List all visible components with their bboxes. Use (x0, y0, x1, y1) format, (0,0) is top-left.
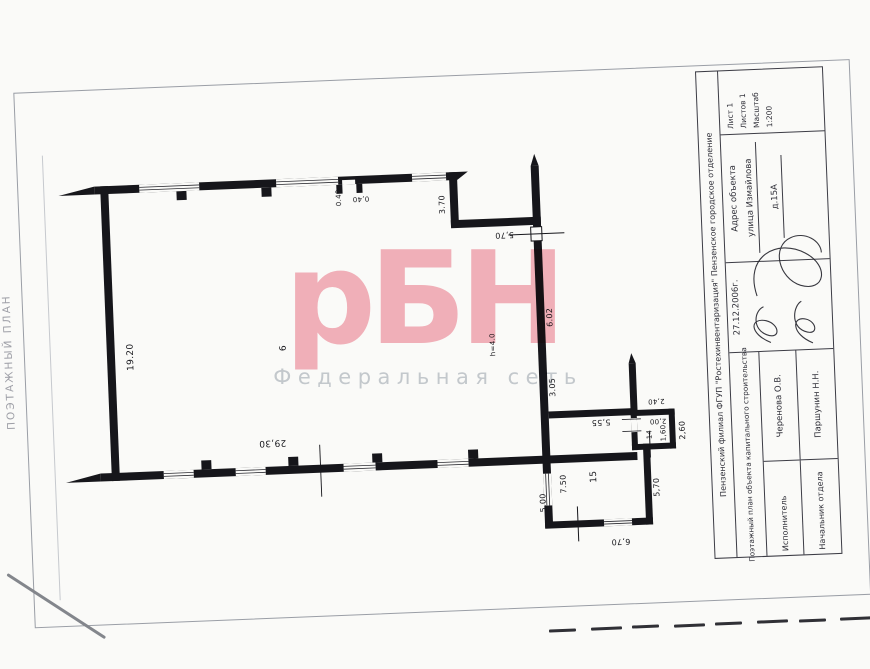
dimension-label: h=4.0 (488, 333, 497, 356)
dimension-label: 29,30 (259, 437, 287, 448)
sheet-info-section: Лист 1 Листов 1 Масштаб 1:200 (718, 67, 824, 134)
dimension-label: 3.70 (437, 195, 447, 214)
dimension-label: 0,40 (352, 195, 369, 204)
head-name: Паршунин Н.Н. (796, 349, 837, 459)
address-house: д.15А (768, 155, 784, 238)
dimension-label: 19.20 (125, 343, 136, 371)
scale-value: 1:200 (761, 69, 776, 127)
address-section: Адрес объекта улица Измайлова д.15А (721, 130, 830, 262)
executor-name: Черенова О.В. (759, 351, 799, 461)
dimension-label: 5,70 (652, 478, 662, 497)
dimension-label: 6.02 (545, 308, 555, 327)
dimension-label: 5.00 (538, 493, 548, 512)
dimension-label: 1,60 (659, 424, 668, 441)
address-label: Адрес объекта (727, 135, 742, 262)
dimension-label: 15 (589, 471, 599, 483)
signature-section: 27.12.2006г. (726, 258, 834, 352)
dimension-label: 14 (645, 430, 653, 440)
dimension-label: 6,70 (611, 537, 630, 547)
dimension-label: 2,40 (648, 397, 665, 406)
perforation-dash (674, 623, 705, 627)
dimension-label: 7.50 (559, 474, 569, 493)
scanned-floor-plan-page: { "side_text": "ПОЭТАЖНЫЙ ПЛАН", "waterm… (0, 0, 870, 652)
executor-label: Исполнитель (764, 459, 804, 555)
head-label: Начальник отдела (801, 458, 842, 554)
dimension-label: 6 (279, 345, 289, 351)
dimension-label: 0.40 (334, 189, 343, 206)
perforation-dash (549, 628, 576, 632)
dimension-label: 5,70 (495, 230, 514, 240)
address-street: улица Измайлова (743, 142, 760, 253)
perforation-dash (799, 618, 826, 622)
dimension-label: 2,60 (678, 420, 688, 439)
title-block: Пензенский филиал ФГУП "Ростехинвентариз… (695, 66, 842, 559)
title-block-table: Пензенский филиал ФГУП "Ростехинвентариз… (695, 66, 842, 559)
head-row: Начальник отдела Паршунин Н.Н. (796, 349, 841, 554)
scanned-sheet: ПОЭТАЖНЫЙ ПЛАН (0, 0, 870, 669)
dimension-label: 3.05 (548, 378, 558, 397)
document-type-section: Поэтажный план объекта капитального стро… (729, 348, 841, 557)
dimension-label: 5,55 (591, 418, 610, 428)
